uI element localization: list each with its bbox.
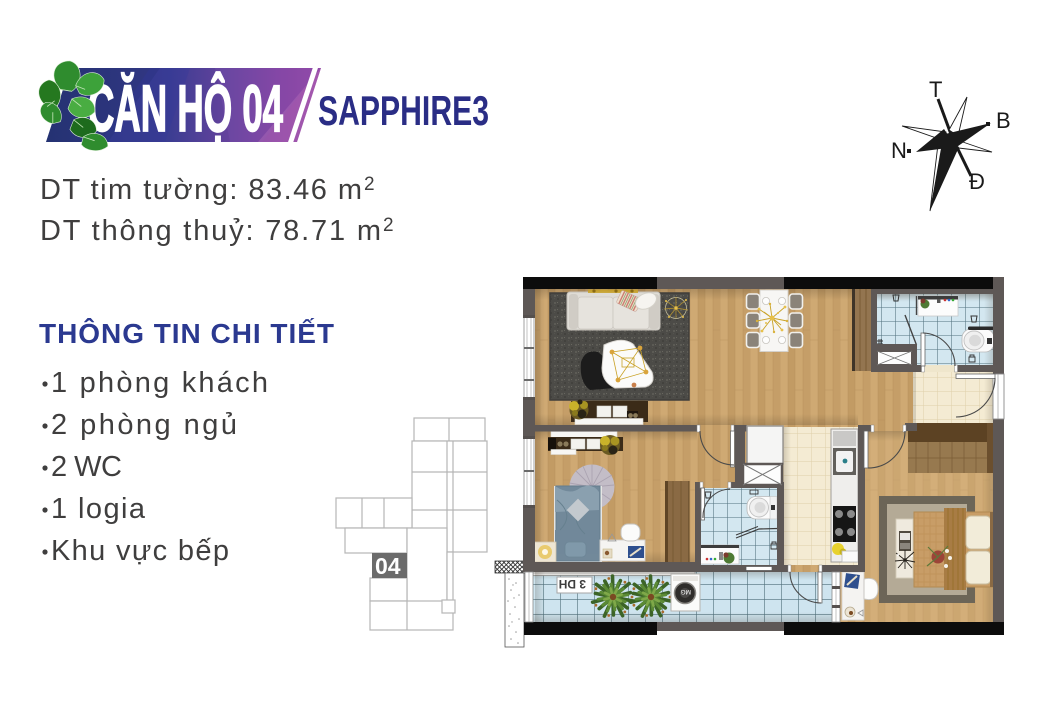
svg-text:2 WC: 2 WC (51, 451, 122, 483)
svg-text:DT thông thuỷ: 78.71 m: DT thông thuỷ: 78.71 m (40, 215, 381, 247)
svg-text:CĂN HỘ 04: CĂN HỘ 04 (88, 71, 283, 145)
svg-text:T: T (929, 77, 942, 102)
svg-text:Đ: Đ (969, 169, 985, 194)
svg-text:SAPPHIRE3: SAPPHIRE3 (318, 87, 489, 134)
svg-text:N: N (891, 138, 907, 163)
svg-text:DT tim tường: 83.46 m: DT tim tường: 83.46 m (40, 174, 362, 206)
svg-text:B: B (996, 108, 1011, 133)
svg-text:THÔNG TIN CHI TIẾT: THÔNG TIN CHI TIẾT (39, 317, 334, 349)
svg-text:04: 04 (375, 553, 401, 579)
svg-text:Khu vực bếp: Khu vực bếp (51, 535, 229, 567)
svg-text:2: 2 (364, 174, 375, 195)
svg-text:MG: MG (681, 588, 691, 595)
svg-text:1 logia: 1 logia (51, 493, 146, 525)
svg-text:1 phòng khách: 1 phòng khách (51, 367, 268, 399)
svg-text:2: 2 (383, 215, 394, 236)
svg-text:3 DH: 3 DH (559, 577, 586, 591)
